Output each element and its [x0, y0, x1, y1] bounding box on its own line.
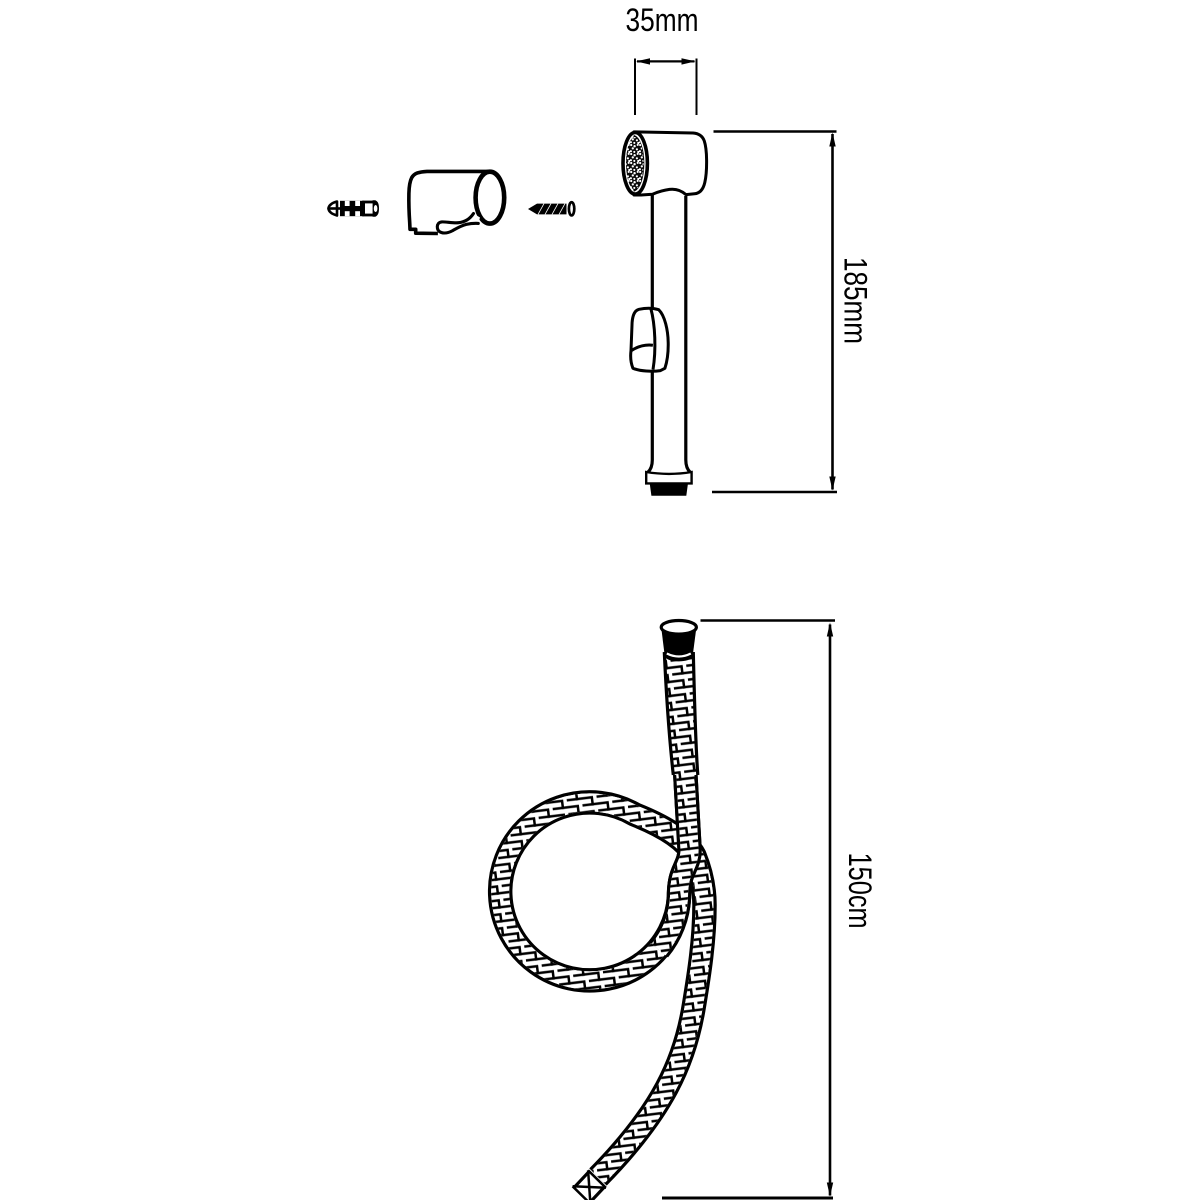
svg-text:150cm: 150cm — [842, 853, 878, 929]
svg-text:35mm: 35mm — [626, 2, 699, 38]
svg-text:185mm: 185mm — [838, 257, 874, 344]
